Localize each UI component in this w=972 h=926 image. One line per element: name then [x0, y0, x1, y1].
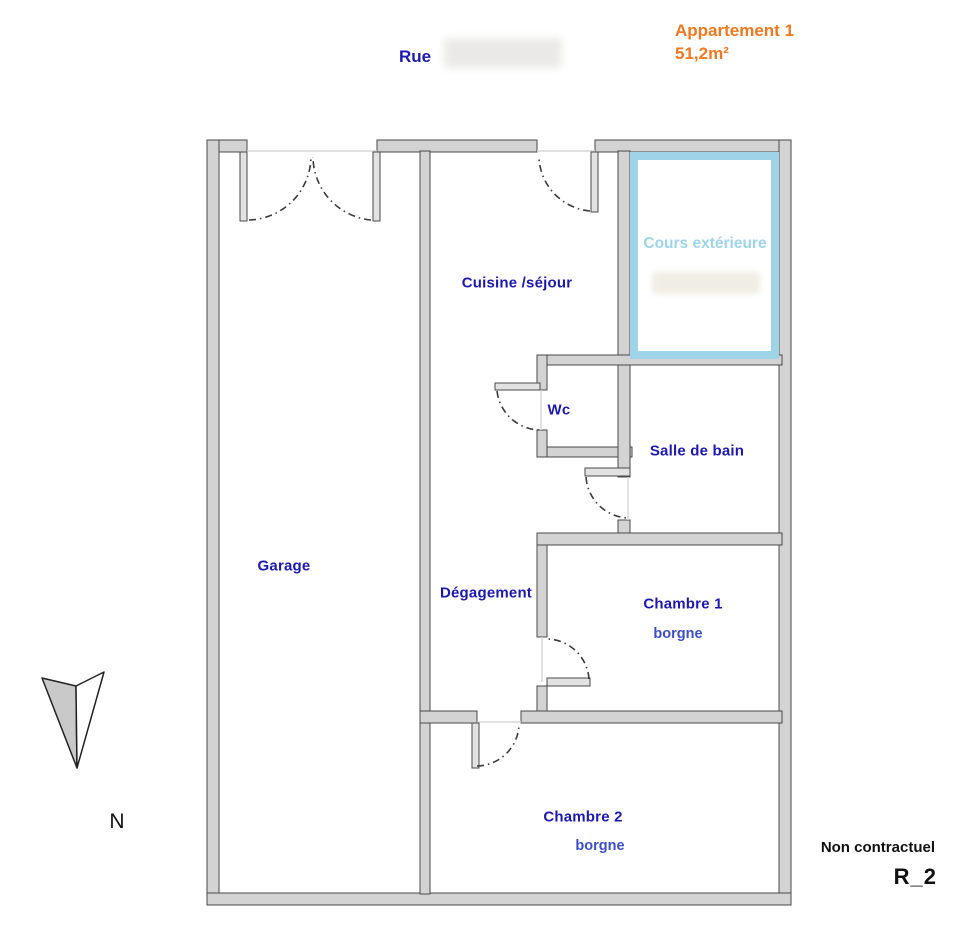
redacted-street-name-smudge — [444, 38, 562, 68]
room-label-bathroom: Salle de bain — [650, 443, 744, 460]
plan-reference: R_2 — [894, 864, 937, 890]
garage-door-leaf-left — [240, 152, 247, 221]
door-swing-arc — [548, 639, 589, 679]
wall-segment — [207, 893, 791, 905]
room-label-bedroom1: Chambre 1 — [643, 596, 722, 613]
wall-segment — [377, 140, 537, 152]
room-label-garage: Garage — [258, 558, 311, 575]
floor-plan-drawing — [0, 0, 972, 926]
street-label: Rue — [399, 47, 431, 67]
door-swing-arc — [249, 157, 311, 220]
room-label-kitchen: Cuisine /séjour — [462, 275, 573, 292]
door-leaves — [240, 152, 630, 768]
room-label-bedroom2: Chambre 2 — [543, 809, 622, 826]
apartment-area: 51,2m² — [675, 42, 794, 65]
north-arrow-icon — [42, 672, 104, 768]
door-thresholds — [247, 151, 628, 722]
courtyard-highlight-box — [634, 156, 775, 355]
north-label: N — [109, 810, 124, 834]
floor-plan-walls — [207, 140, 791, 905]
garage-door-leaf-right — [373, 152, 380, 221]
wall-segment — [537, 533, 782, 545]
room-label-hallway: Dégagement — [440, 585, 532, 602]
door-swing-arc — [497, 391, 540, 430]
room-label-courtyard: Cours extérieure — [643, 235, 766, 253]
wall-segment — [779, 140, 791, 905]
disclaimer-text: Non contractuel — [821, 839, 935, 856]
bedroom1-door-leaf — [547, 678, 590, 686]
door-swing-arc — [539, 157, 590, 211]
wall-segment — [537, 430, 547, 457]
wall-segment — [521, 711, 782, 723]
wall-segment — [595, 140, 791, 152]
wall-segment — [618, 151, 630, 359]
door-swing-arc — [313, 157, 371, 220]
wc-door-leaf — [495, 383, 540, 390]
apartment-info: Appartement 1 51,2m² — [675, 19, 794, 65]
door-swing-arc — [477, 726, 519, 766]
wall-segment — [420, 711, 477, 723]
wall-segment — [537, 686, 547, 714]
wall-segment — [537, 545, 547, 637]
wall-segment — [420, 151, 430, 894]
room-label-wc: Wc — [548, 402, 571, 419]
bathroom-door-leaf — [585, 468, 630, 476]
door-swing-arcs — [249, 157, 628, 766]
erased-text-smudge — [652, 272, 760, 294]
wall-segment — [618, 365, 630, 477]
bedroom2-door-leaf — [472, 723, 479, 768]
wall-segment — [207, 140, 219, 905]
room-note-bedroom1: borgne — [653, 626, 702, 642]
door-swing-arc — [586, 477, 628, 518]
apartment-name: Appartement 1 — [675, 19, 794, 42]
kitchen-door-leaf — [591, 152, 598, 212]
room-note-bedroom2: borgne — [575, 838, 624, 854]
